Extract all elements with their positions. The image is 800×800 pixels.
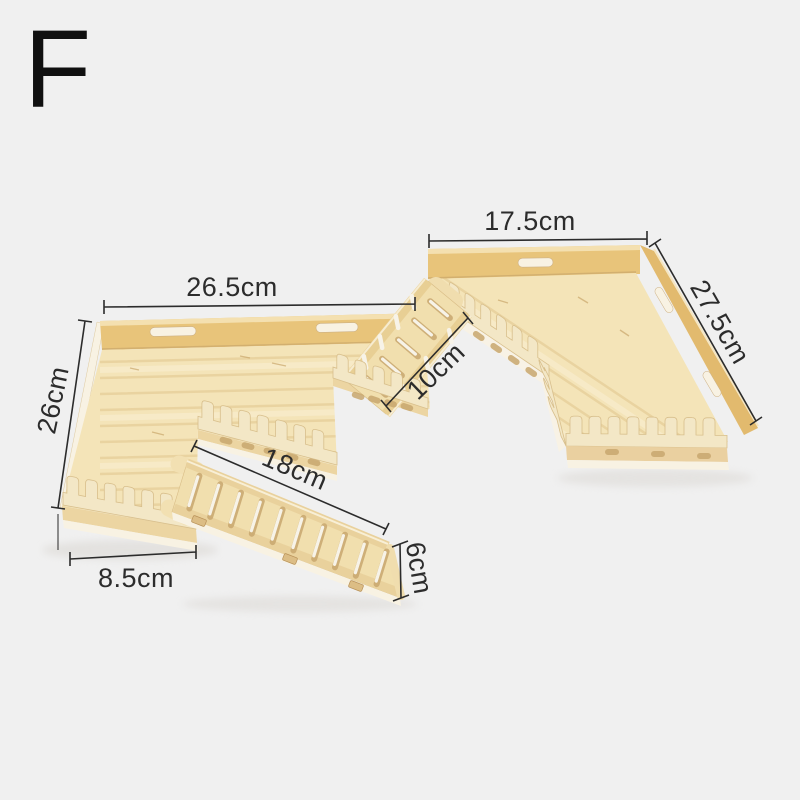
product-photo: 17.5cm 27.5cm 26.5cm 26cm 10cm 18cm 8.5c… (0, 0, 800, 800)
product-photo-stage: 17.5cm 27.5cm 26.5cm 26cm 10cm 18cm 8.5c… (0, 0, 800, 800)
dimension-label-top-width: 17.5cm (484, 206, 576, 236)
picket-fence-right-front (566, 416, 727, 448)
variant-letter: F (24, 8, 91, 131)
shadow-right-platform (557, 469, 753, 487)
wall-handle-slot (518, 258, 553, 268)
wall-handle-slot (150, 326, 196, 336)
dimension-label-front-shelf-width: 8.5cm (98, 563, 174, 593)
dimension-label-left-width: 26.5cm (186, 272, 278, 302)
wall-handle-slot (316, 322, 358, 332)
